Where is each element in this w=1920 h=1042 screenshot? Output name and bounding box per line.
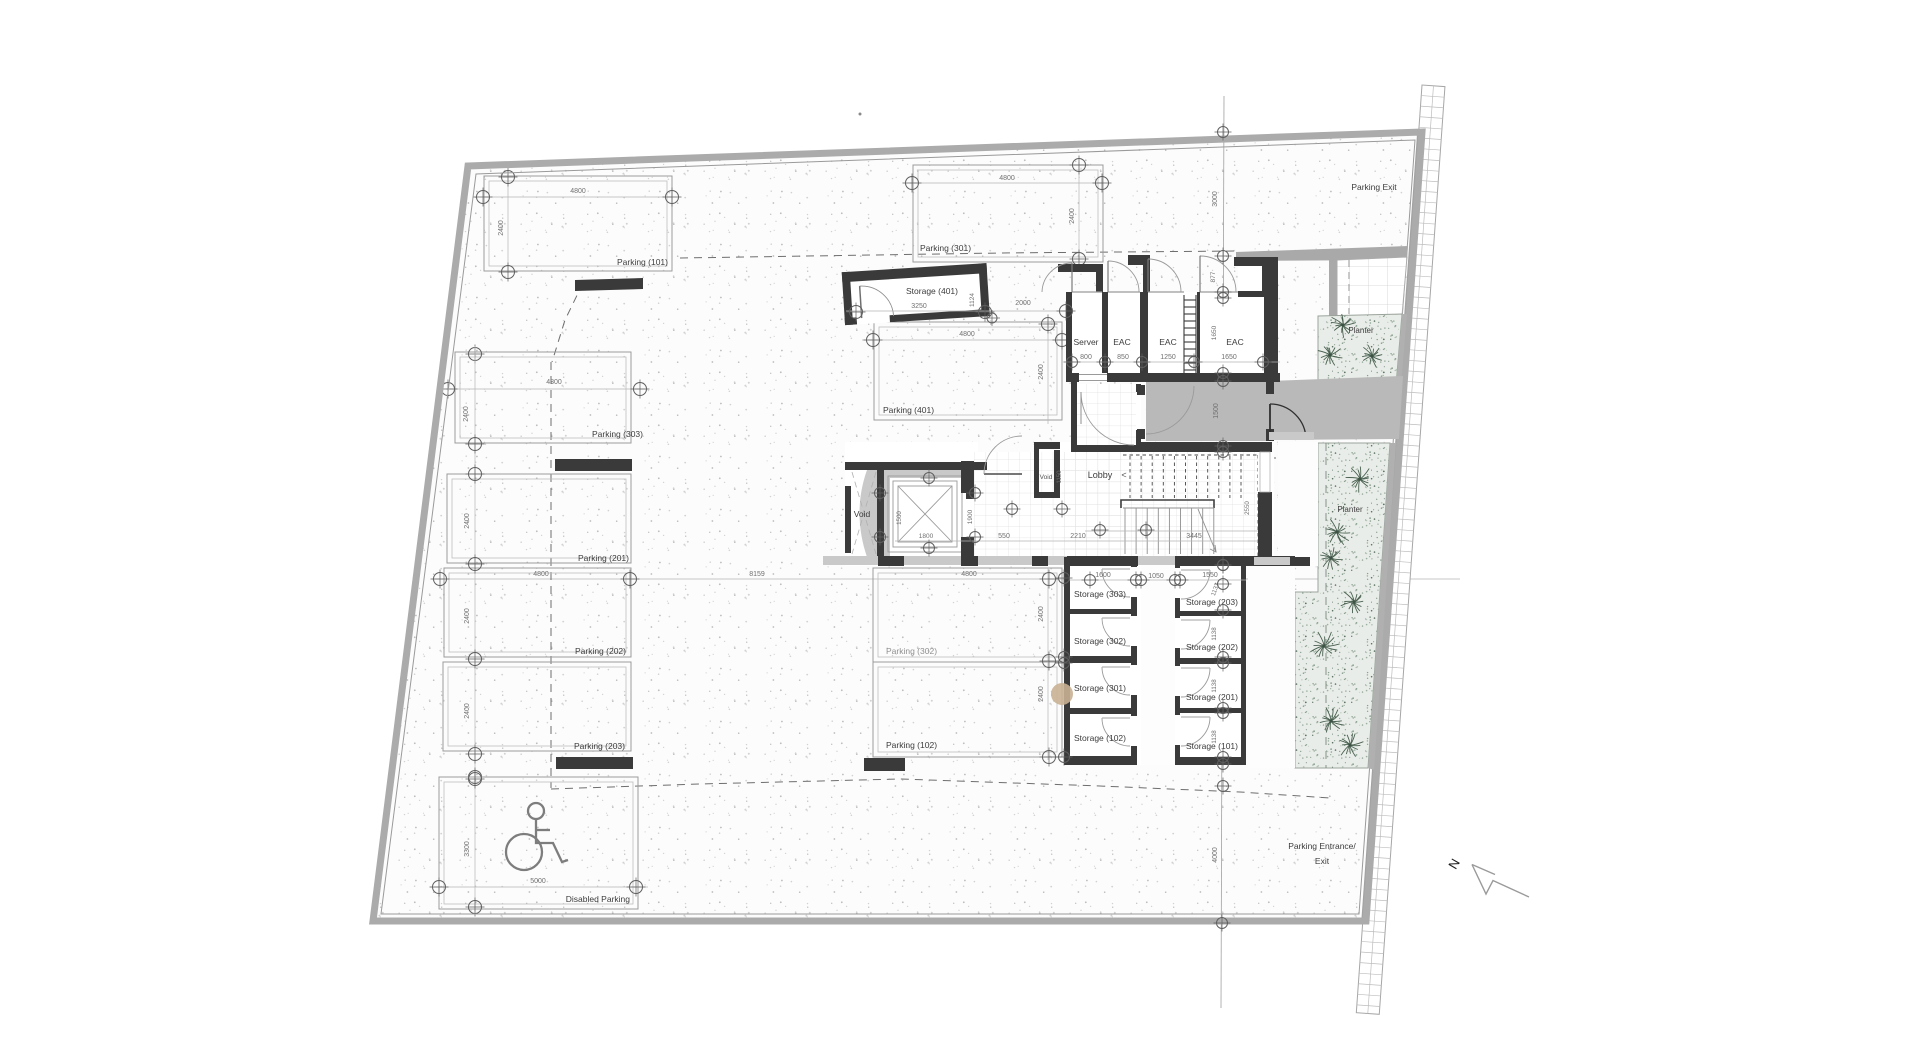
svg-text:Parking (302): Parking (302)	[886, 646, 937, 656]
svg-text:Storage (302): Storage (302)	[1074, 636, 1126, 646]
svg-text:1550: 1550	[1202, 572, 1218, 579]
svg-text:Parking Entrance/: Parking Entrance/	[1288, 841, 1356, 851]
svg-text:Storage (202): Storage (202)	[1186, 642, 1238, 652]
svg-text:3250: 3250	[911, 303, 927, 310]
svg-text:4800: 4800	[999, 175, 1015, 182]
svg-text:N: N	[1445, 856, 1463, 872]
svg-text:2400: 2400	[1038, 686, 1045, 702]
svg-text:Parking (202): Parking (202)	[575, 646, 626, 656]
svg-text:Parking (101): Parking (101)	[617, 257, 668, 267]
svg-text:<: <	[1121, 470, 1126, 480]
svg-text:Disabled Parking: Disabled Parking	[566, 894, 631, 904]
svg-text:4000: 4000	[1212, 847, 1219, 863]
svg-text:1138: 1138	[1211, 730, 1218, 744]
svg-text:Exit: Exit	[1315, 856, 1330, 866]
svg-text:Parking (201): Parking (201)	[578, 553, 629, 563]
svg-text:1600: 1600	[1095, 572, 1111, 579]
svg-text:Parking Exit: Parking Exit	[1351, 182, 1397, 192]
svg-text:4800: 4800	[961, 571, 977, 578]
svg-text:2000: 2000	[1015, 300, 1031, 307]
svg-text:2400: 2400	[464, 513, 471, 529]
svg-text:5000: 5000	[530, 878, 546, 885]
svg-text:Parking (303): Parking (303)	[592, 429, 643, 439]
svg-text:1650: 1650	[1211, 325, 1218, 340]
svg-text:Parking (401): Parking (401)	[883, 405, 934, 415]
svg-text:Server: Server	[1073, 337, 1098, 347]
svg-text:2400: 2400	[464, 703, 471, 719]
svg-text:2400: 2400	[1069, 208, 1076, 224]
svg-text:1500: 1500	[896, 511, 903, 525]
svg-text:2210: 2210	[1070, 533, 1086, 540]
svg-text:EAC: EAC	[1159, 337, 1176, 347]
svg-text:800: 800	[1080, 354, 1092, 361]
svg-text:Planter: Planter	[1337, 505, 1363, 514]
svg-text:1650: 1650	[1221, 354, 1237, 361]
svg-text:1150: 1150	[1057, 470, 1063, 484]
svg-text:1124: 1124	[969, 293, 976, 307]
svg-text:850: 850	[1117, 354, 1129, 361]
svg-text:2400: 2400	[498, 220, 505, 236]
svg-text:2400: 2400	[1038, 364, 1045, 380]
svg-text:Parking (301): Parking (301)	[920, 243, 971, 253]
svg-text:2550: 2550	[1244, 501, 1251, 515]
svg-text:550: 550	[998, 533, 1010, 540]
svg-text:Lobby: Lobby	[1088, 470, 1113, 480]
svg-text:EAC: EAC	[1113, 337, 1130, 347]
svg-text:Parking (203): Parking (203)	[574, 741, 625, 751]
svg-text:2400: 2400	[1038, 606, 1045, 622]
svg-text:3000: 3000	[1212, 191, 1219, 207]
svg-text:4800: 4800	[533, 571, 549, 578]
svg-text:1138: 1138	[1211, 679, 1218, 693]
svg-text:2400: 2400	[463, 406, 470, 422]
svg-text:Storage (303): Storage (303)	[1074, 589, 1126, 599]
svg-text:3300: 3300	[464, 841, 471, 857]
svg-text:Void: Void	[1040, 474, 1053, 481]
svg-text:1500: 1500	[1213, 403, 1220, 419]
svg-text:4800: 4800	[570, 188, 586, 195]
svg-text:Storage (102): Storage (102)	[1074, 733, 1126, 743]
svg-text:8159: 8159	[749, 571, 765, 578]
svg-text:4800: 4800	[546, 379, 562, 386]
svg-text:Storage (301): Storage (301)	[1074, 683, 1126, 693]
svg-text:EAC: EAC	[1226, 337, 1243, 347]
svg-text:Storage (203): Storage (203)	[1186, 597, 1238, 607]
svg-text:1800: 1800	[919, 533, 934, 540]
svg-text:3445: 3445	[1186, 533, 1202, 540]
svg-text:1250: 1250	[1160, 354, 1176, 361]
svg-text:4800: 4800	[959, 331, 975, 338]
svg-text:2400: 2400	[464, 608, 471, 624]
svg-text:Parking (102): Parking (102)	[886, 740, 937, 750]
svg-text:1050: 1050	[1148, 573, 1164, 580]
svg-text:877: 877	[1210, 271, 1217, 282]
svg-text:Void: Void	[854, 509, 871, 519]
svg-text:1138: 1138	[1211, 627, 1218, 641]
svg-text:Storage (401): Storage (401)	[906, 286, 958, 296]
svg-text:1900: 1900	[967, 509, 974, 524]
svg-text:Planter: Planter	[1348, 326, 1374, 335]
